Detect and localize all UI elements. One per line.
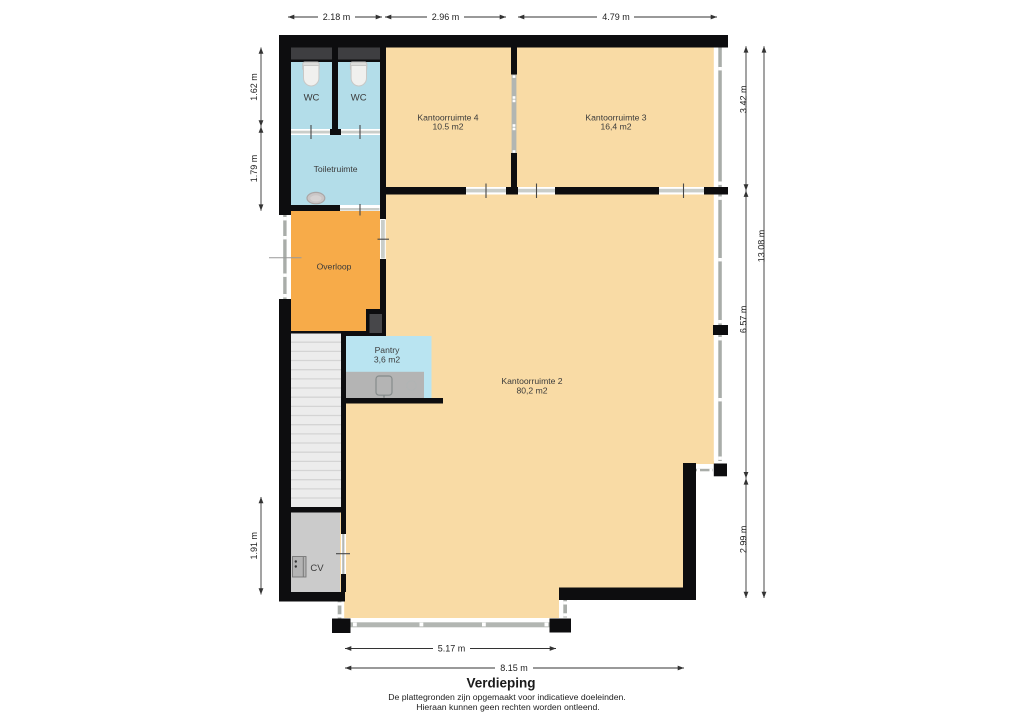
svg-text:Toiletruimte: Toiletruimte [314,164,358,174]
svg-text:3.42 m: 3.42 m [739,86,749,114]
svg-text:2.99 m: 2.99 m [739,526,749,554]
svg-text:Overloop: Overloop [317,261,352,271]
svg-text:8.15 m: 8.15 m [500,663,528,673]
svg-text:Pantry: Pantry [375,345,401,355]
svg-text:WC: WC [351,93,367,104]
svg-text:1.79 m: 1.79 m [249,155,259,183]
svg-text:1.91 m: 1.91 m [249,532,259,560]
svg-text:2.96 m: 2.96 m [432,12,460,22]
svg-text:Verdieping: Verdieping [466,675,535,690]
svg-text:80,2 m2: 80,2 m2 [516,385,547,395]
svg-text:13.08 m: 13.08 m [757,230,767,263]
svg-text:16,4 m2: 16,4 m2 [600,121,631,131]
svg-text:4.79 m: 4.79 m [602,12,630,22]
svg-text:CV: CV [310,563,324,574]
svg-text:10.5 m2: 10.5 m2 [432,121,463,131]
svg-text:6.57 m: 6.57 m [739,306,749,334]
svg-text:2.18 m: 2.18 m [323,12,351,22]
svg-text:1.62 m: 1.62 m [249,73,259,101]
svg-text:3,6 m2: 3,6 m2 [374,355,400,365]
svg-text:5.17 m: 5.17 m [438,644,466,654]
svg-text:De plattegronden zijn opgemaak: De plattegronden zijn opgemaakt voor ind… [388,692,626,702]
svg-text:WC: WC [304,93,320,104]
svg-text:Hieraan kunnen geen rechten wo: Hieraan kunnen geen rechten worden ontle… [416,702,600,712]
